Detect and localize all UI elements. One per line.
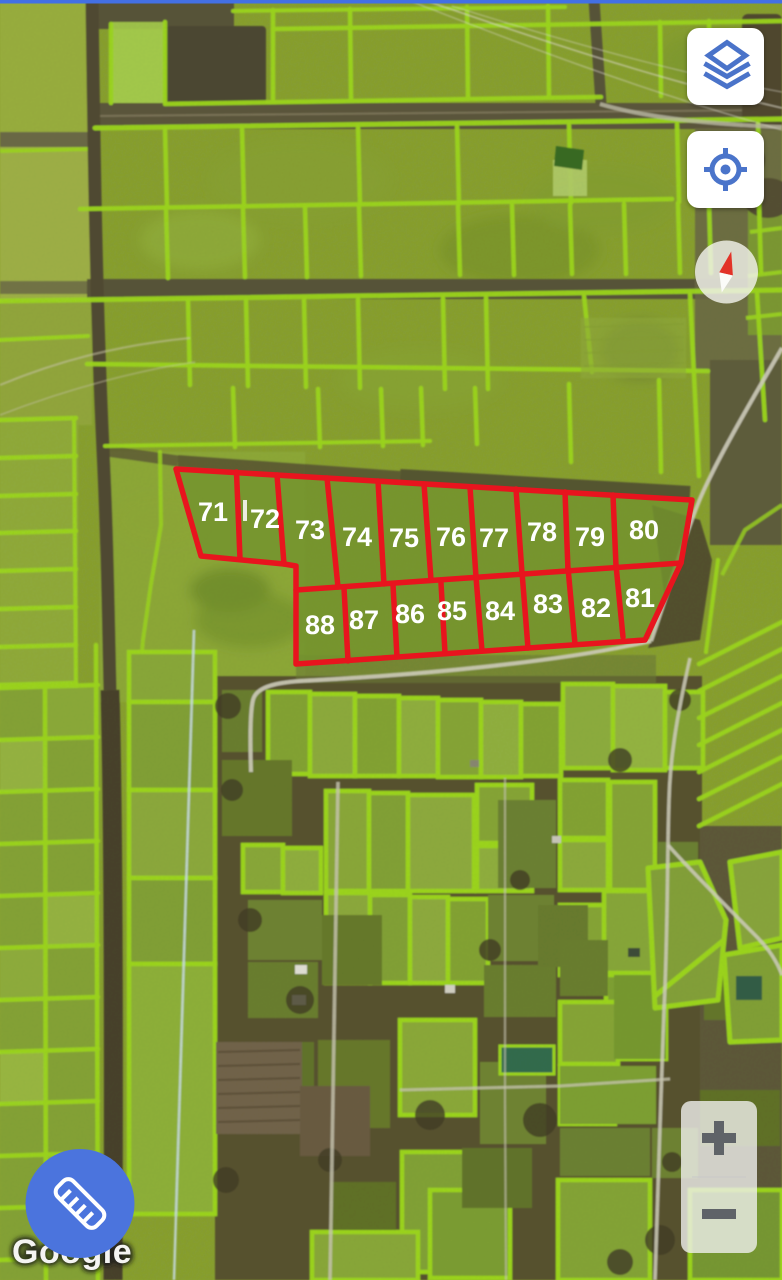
svg-text:73: 73 [295,515,325,545]
svg-text:84: 84 [485,596,515,626]
svg-text:88: 88 [305,610,335,640]
svg-text:78: 78 [527,517,557,547]
svg-text:75: 75 [389,523,419,553]
svg-text:86: 86 [395,599,425,629]
svg-text:74: 74 [342,522,372,552]
svg-text:87: 87 [349,605,379,635]
svg-text:71: 71 [198,497,228,527]
svg-text:79: 79 [575,522,605,552]
svg-text:85: 85 [437,596,467,626]
svg-text:83: 83 [533,589,563,619]
svg-text:82: 82 [581,593,611,623]
svg-text:72: 72 [250,504,280,534]
svg-text:81: 81 [625,583,655,613]
svg-text:77: 77 [479,523,509,553]
svg-text:80: 80 [629,515,659,545]
svg-text:76: 76 [436,522,466,552]
